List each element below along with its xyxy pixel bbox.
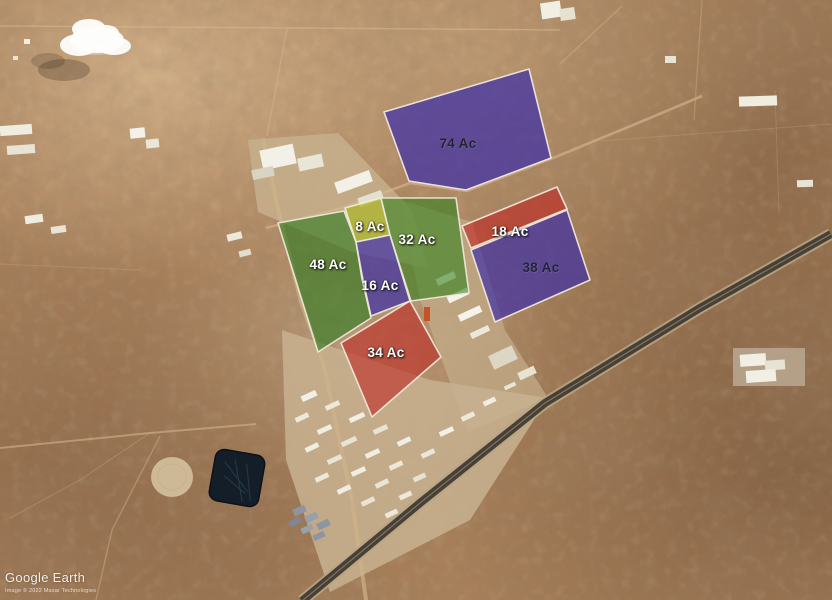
parcel-32-label: 32 Ac [398,232,435,247]
parcel-18-label: 18 Ac [491,224,528,239]
map-canvas: 74 Ac48 Ac8 Ac32 Ac16 Ac18 Ac38 Ac34 Ac [0,0,832,600]
parcel-34-label: 34 Ac [367,345,404,360]
parcel-48-label: 48 Ac [309,257,346,272]
imagery-attribution: Image © 2022 Maxar Technologies [5,588,96,594]
parcel-74-label: 74 Ac [439,136,476,151]
parcel-8-label: 8 Ac [355,219,384,234]
pond [208,448,266,508]
parcel-38-label: 38 Ac [522,260,559,275]
parcel-16-label: 16 Ac [361,278,398,293]
satellite-map[interactable]: 74 Ac48 Ac8 Ac32 Ac16 Ac18 Ac38 Ac34 Ac … [0,0,832,600]
caliche-pit [151,457,193,497]
google-earth-watermark: Google Earth [5,570,85,585]
